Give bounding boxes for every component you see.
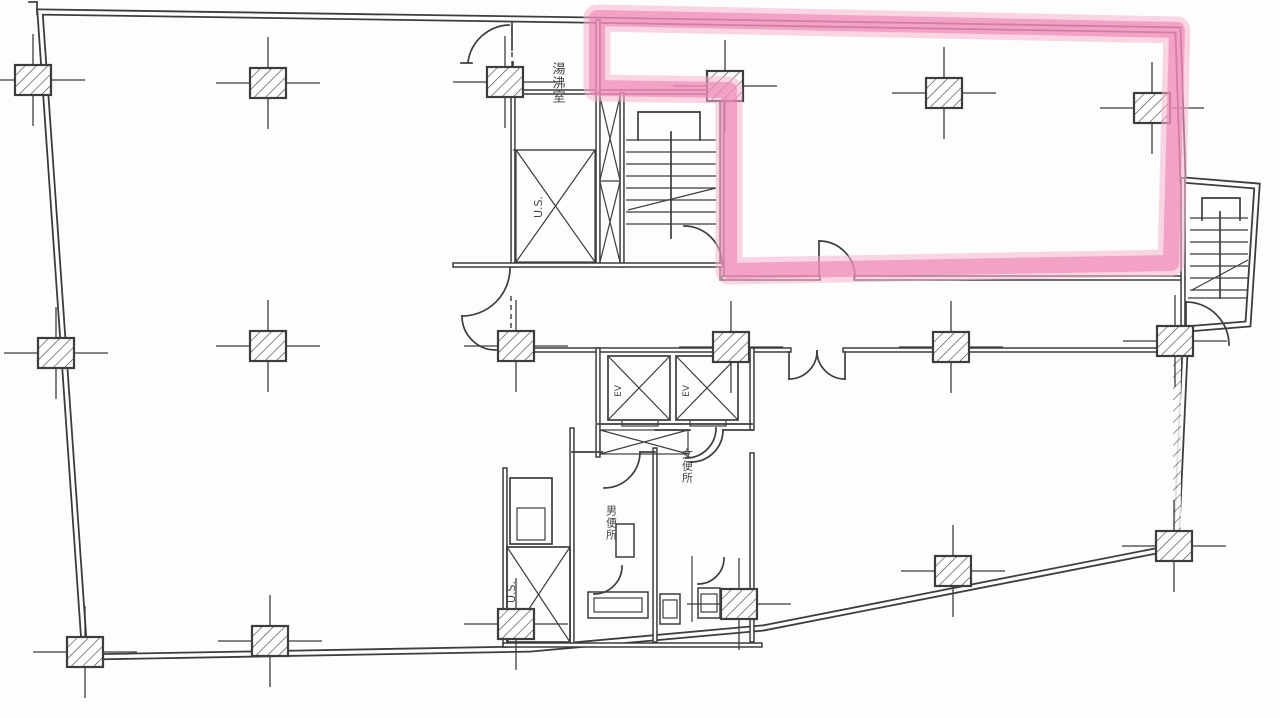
stair-right: [1188, 198, 1248, 298]
label-hot-water-room: 湯沸室: [550, 62, 566, 104]
column-icon: [218, 595, 322, 687]
door-double-lower-hall: [789, 351, 845, 379]
elevator-bank: [600, 356, 738, 454]
narrow-duct-shaft: [600, 97, 620, 262]
pipe-shaft: [600, 430, 688, 454]
label-lower-shaft: U.S.: [505, 581, 518, 603]
column-icon: [901, 525, 1005, 617]
column-icon: [679, 301, 783, 393]
highlight-halo: [597, 18, 1177, 271]
toilet-block: [507, 478, 724, 642]
column-icon: [899, 301, 1003, 393]
sink-counter: [510, 478, 552, 544]
column-icon: [216, 300, 320, 392]
label-elevator-left: EV: [614, 384, 624, 397]
elevator-sill-right: [690, 420, 726, 426]
column-icon: [464, 300, 568, 392]
column-icon: [892, 47, 996, 139]
column-icon: [33, 606, 137, 698]
highlight-core: [597, 18, 1177, 271]
stair-core-top: [513, 97, 722, 264]
mens-fixtures: [588, 524, 648, 618]
door-mens: [604, 452, 640, 488]
womens-fixtures: [660, 556, 724, 624]
elevator-sill-left: [622, 420, 658, 426]
column-icon: [216, 37, 320, 129]
label-upper-shaft: U.S.: [532, 196, 545, 218]
label-elevator-right: EV: [682, 384, 692, 397]
interior-walls: [455, 22, 1183, 645]
staircase-top: [626, 112, 716, 238]
column-icon: [453, 36, 557, 128]
highlight-region: [597, 18, 1177, 271]
column-icon: [4, 307, 108, 399]
label-womens-toilet: 女便所: [681, 447, 694, 484]
column-icon: [1122, 500, 1226, 592]
floor-plan-canvas: 湯沸室 U.S. U.S. EV EV 男便所 女便所: [0, 0, 1280, 718]
label-mens-toilet: 男便所: [605, 505, 618, 541]
column-icon: [1123, 295, 1227, 387]
